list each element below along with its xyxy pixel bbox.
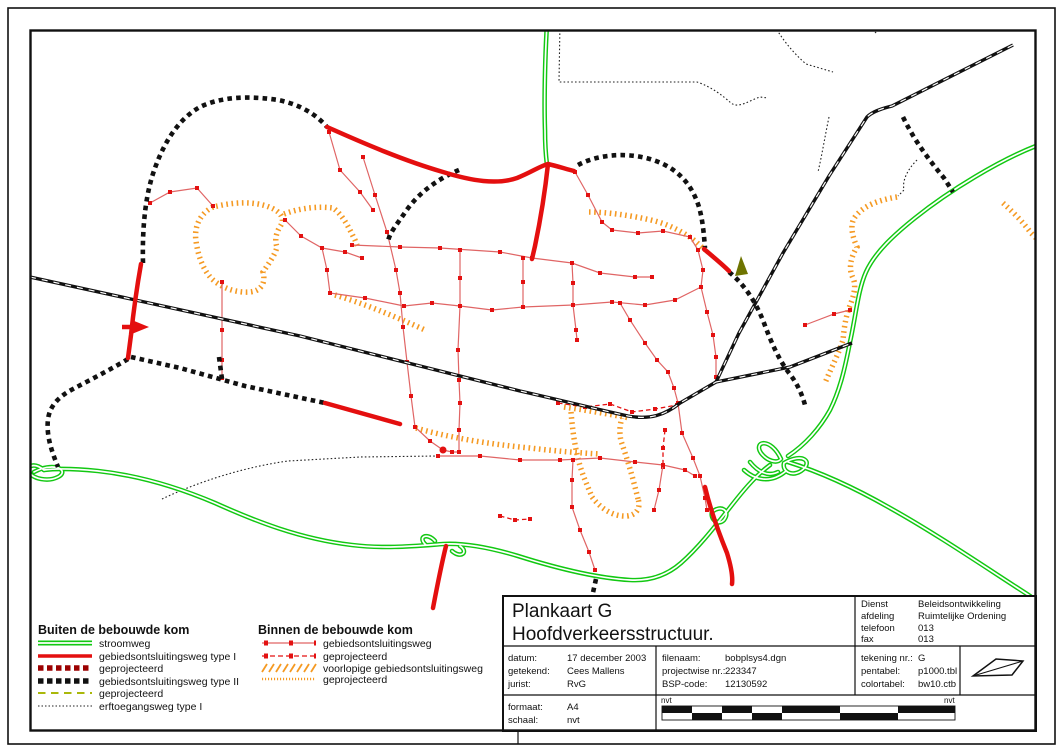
meta-value: 17 december 2003 bbox=[567, 653, 646, 664]
red-arrow-icon bbox=[133, 321, 149, 334]
gow-segment bbox=[352, 245, 652, 277]
meta-value: bw10.ctb bbox=[918, 679, 956, 690]
scale-cell bbox=[752, 713, 782, 720]
gow1-segment bbox=[532, 164, 548, 259]
binnen-gow-lines bbox=[150, 132, 850, 570]
gow2-segment bbox=[592, 579, 596, 597]
legend-item-label: gebiedsontsluitingsweg type I bbox=[99, 651, 236, 663]
gow2-segment bbox=[903, 117, 953, 192]
org-value: 013 bbox=[918, 623, 934, 634]
format-value: A4 bbox=[567, 702, 579, 713]
railway-segment bbox=[716, 45, 1013, 382]
gow-segment bbox=[150, 188, 213, 206]
scale-cell bbox=[722, 706, 752, 713]
meta-label: getekend: bbox=[508, 666, 550, 677]
legend: Buiten de bebouwde kom stroomweg gebieds… bbox=[38, 623, 483, 713]
voorlopige-gow-segment bbox=[284, 207, 358, 248]
scale-cell bbox=[840, 713, 898, 720]
org-label: Dienst bbox=[861, 599, 888, 610]
scale-cell bbox=[898, 706, 955, 713]
gow1-segment bbox=[325, 403, 400, 424]
map-area bbox=[28, 8, 1036, 608]
erftoegangsweg-segment bbox=[898, 160, 917, 196]
voorlopige-gow-segment bbox=[589, 212, 705, 250]
voorlopige-swatch bbox=[262, 664, 316, 672]
gow-segment bbox=[654, 465, 663, 510]
meta-label: pentabel: bbox=[861, 666, 900, 677]
meta-value: G bbox=[918, 653, 925, 664]
gow1-segment bbox=[433, 546, 446, 608]
stroomweg-core bbox=[788, 146, 1036, 456]
plan-sheet: Buiten de bebouwde kom stroomweg gebieds… bbox=[0, 0, 1063, 752]
railway-lines bbox=[30, 45, 1013, 417]
gow-segment bbox=[805, 310, 850, 325]
scale-cell bbox=[782, 706, 840, 713]
meta-value: 12130592 bbox=[725, 679, 767, 690]
meta-label: jurist: bbox=[507, 679, 531, 690]
meta-label: tekening nr.: bbox=[861, 653, 913, 664]
gow-geprojecteerd-segment bbox=[663, 430, 665, 467]
org-value: 013 bbox=[918, 634, 934, 645]
scale-cell bbox=[662, 706, 692, 713]
scale-cell bbox=[692, 713, 722, 720]
gow-segment bbox=[438, 456, 695, 476]
erftoegangsweg-segment bbox=[818, 117, 829, 172]
stroomweg-core bbox=[44, 465, 770, 580]
railway-segment bbox=[30, 277, 716, 417]
org-label: afdeling bbox=[861, 611, 894, 622]
meta-value: RvG bbox=[567, 679, 586, 690]
gow2-segment bbox=[131, 357, 325, 403]
gow-segment bbox=[572, 263, 577, 340]
gow-segment bbox=[620, 303, 707, 510]
voorlopige-gow-segment bbox=[592, 497, 639, 516]
voorlopige-gow-segment bbox=[335, 295, 425, 330]
voorlopige-gow-segment bbox=[620, 418, 638, 499]
org-label: telefoon bbox=[861, 623, 895, 634]
erftoegangsweg-lines bbox=[162, 22, 917, 499]
legend-item-label: geprojecteerd bbox=[323, 674, 387, 686]
gow2-dotted-lines bbox=[48, 98, 953, 597]
format-value: nvt bbox=[567, 715, 580, 726]
legend-item-label: erftoegangsweg type I bbox=[99, 701, 202, 713]
meta-label: projectwise nr.: bbox=[662, 666, 725, 677]
title-block: Plankaart G Hoofdverkeersstructuur. Dien… bbox=[503, 596, 1036, 731]
voorlopige-gow-segment bbox=[196, 203, 283, 292]
gow-segment bbox=[322, 248, 330, 293]
legend-item-label: gebiedsontsluitingsweg bbox=[323, 638, 432, 650]
scale-left-label: nvt bbox=[661, 696, 672, 705]
stroomweg-roads bbox=[28, 8, 1036, 601]
voorlopige-gow-lines bbox=[196, 197, 1036, 516]
gow-segment bbox=[458, 250, 460, 452]
erftoegangsweg-segment bbox=[559, 22, 768, 105]
legend-item-label: geprojecteerd bbox=[99, 688, 163, 700]
org-value: Ruimtelijke Ordening bbox=[918, 611, 1006, 622]
meta-value: bobplsys4.dgn bbox=[725, 653, 786, 664]
plan-map-svg: Buiten de bebouwde kom stroomweg gebieds… bbox=[0, 0, 1063, 752]
gow1-segment bbox=[704, 249, 729, 271]
gow-segment bbox=[572, 460, 595, 570]
legend-item-label: geprojecteerd bbox=[99, 663, 163, 675]
binnen-gow-geprojecteerd-lines bbox=[500, 403, 677, 520]
map-title-line1: Plankaart G bbox=[512, 601, 612, 622]
gow2-segment bbox=[388, 170, 459, 241]
voorlopige-gow-segment bbox=[1003, 203, 1036, 238]
meta-label: colortabel: bbox=[861, 679, 905, 690]
legend-right-swatches bbox=[262, 643, 316, 679]
gow1-segment bbox=[128, 264, 141, 358]
olive-arrow-icon bbox=[735, 256, 748, 276]
stroomweg-core bbox=[788, 462, 1036, 601]
legend-item-label: geprojecteerd bbox=[323, 651, 387, 663]
meta-label: BSP-code: bbox=[662, 679, 707, 690]
gow-segment bbox=[575, 172, 698, 250]
gow-geprojecteerd-segment bbox=[500, 516, 530, 520]
legend-right-title: Binnen de bebouwde kom bbox=[258, 623, 413, 637]
format-label: formaat: bbox=[508, 702, 543, 713]
gow-segment bbox=[330, 287, 701, 310]
gow2-segment bbox=[143, 98, 327, 263]
legend-item-label: stroomweg bbox=[99, 638, 151, 650]
gow2-segment bbox=[219, 357, 222, 379]
stroomweg-segment bbox=[788, 462, 1036, 601]
gow-segment bbox=[698, 250, 716, 377]
org-value: Beleidsontwikkeling bbox=[918, 599, 1001, 610]
legend-item-label: gebiedsontsluitingsweg type II bbox=[99, 676, 239, 688]
stroomweg-segment bbox=[788, 146, 1036, 456]
gow1-segment bbox=[327, 127, 574, 182]
meta-value: Cees Mallens bbox=[567, 666, 625, 677]
format-label: schaal: bbox=[508, 715, 538, 726]
gow2-segment bbox=[48, 359, 128, 467]
legend-left-title: Buiten de bebouwde kom bbox=[38, 623, 189, 637]
org-label: fax bbox=[861, 634, 874, 645]
meta-value: 223347 bbox=[725, 666, 757, 677]
scale-right-label: nvt bbox=[944, 696, 955, 705]
meta-value: p1000.tbl bbox=[918, 666, 957, 677]
railway-core bbox=[716, 45, 1013, 382]
map-title-line2: Hoofdverkeersstructuur. bbox=[512, 624, 714, 645]
gow-junction bbox=[440, 447, 447, 454]
gow2-segment bbox=[729, 272, 805, 405]
meta-label: filenaam: bbox=[662, 653, 701, 664]
meta-label: datum: bbox=[508, 653, 537, 664]
gow1-roads bbox=[122, 127, 748, 608]
erftoegangsweg-segment bbox=[162, 456, 437, 499]
legend-left-swatches bbox=[38, 643, 92, 706]
